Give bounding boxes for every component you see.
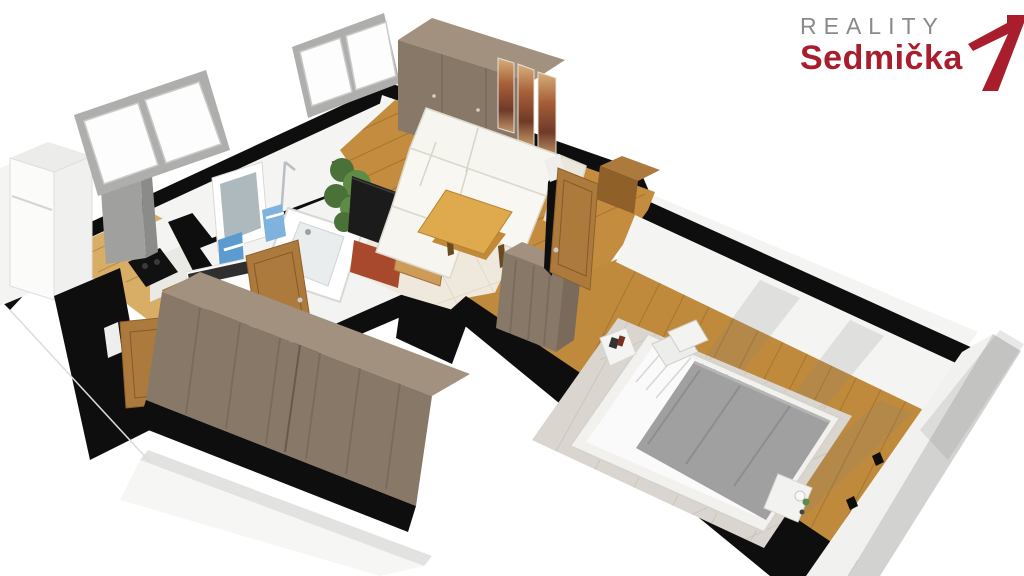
brand-logo-reality: REALITY xyxy=(800,14,963,39)
tub-faucet xyxy=(305,229,311,235)
fridge xyxy=(10,142,92,300)
brand-logo: REALITY Sedmička ® xyxy=(800,14,1015,99)
floorplan-page: REALITY Sedmička ® xyxy=(0,0,1024,576)
towel-right xyxy=(262,204,286,242)
flower-vase xyxy=(795,491,805,501)
brand-logo-seven-icon: ® xyxy=(965,12,1024,99)
brand-logo-text: REALITY Sedmička xyxy=(800,14,963,78)
door-handle xyxy=(298,298,303,303)
hallway xyxy=(10,268,470,576)
door-handle xyxy=(554,248,559,253)
brand-logo-sedmicka: Sedmička xyxy=(800,39,963,78)
